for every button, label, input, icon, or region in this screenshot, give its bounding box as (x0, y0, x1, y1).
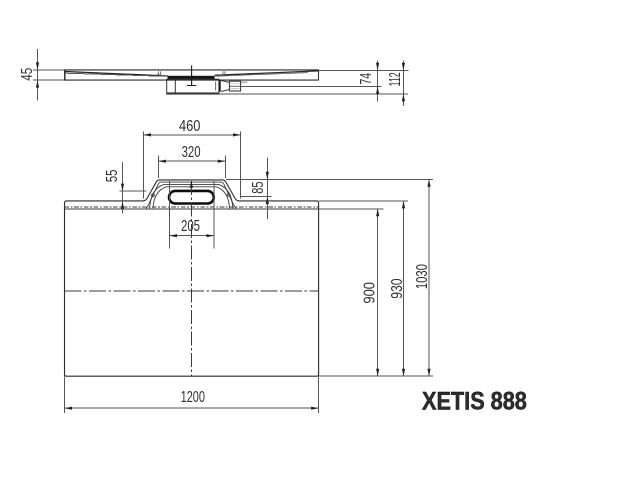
svg-text:74: 74 (358, 73, 375, 85)
svg-text:45: 45 (19, 68, 36, 81)
svg-text:112: 112 (387, 72, 404, 86)
svg-text:XETIS 888: XETIS 888 (422, 387, 527, 415)
svg-text:1030: 1030 (414, 264, 431, 289)
svg-text:85: 85 (250, 181, 267, 193)
svg-text:930: 930 (389, 278, 406, 298)
svg-text:1200: 1200 (181, 389, 205, 406)
svg-text:460: 460 (179, 118, 201, 135)
svg-text:320: 320 (182, 144, 201, 161)
svg-text:205: 205 (181, 218, 200, 235)
svg-text:900: 900 (361, 282, 378, 304)
svg-text:55: 55 (104, 170, 121, 182)
